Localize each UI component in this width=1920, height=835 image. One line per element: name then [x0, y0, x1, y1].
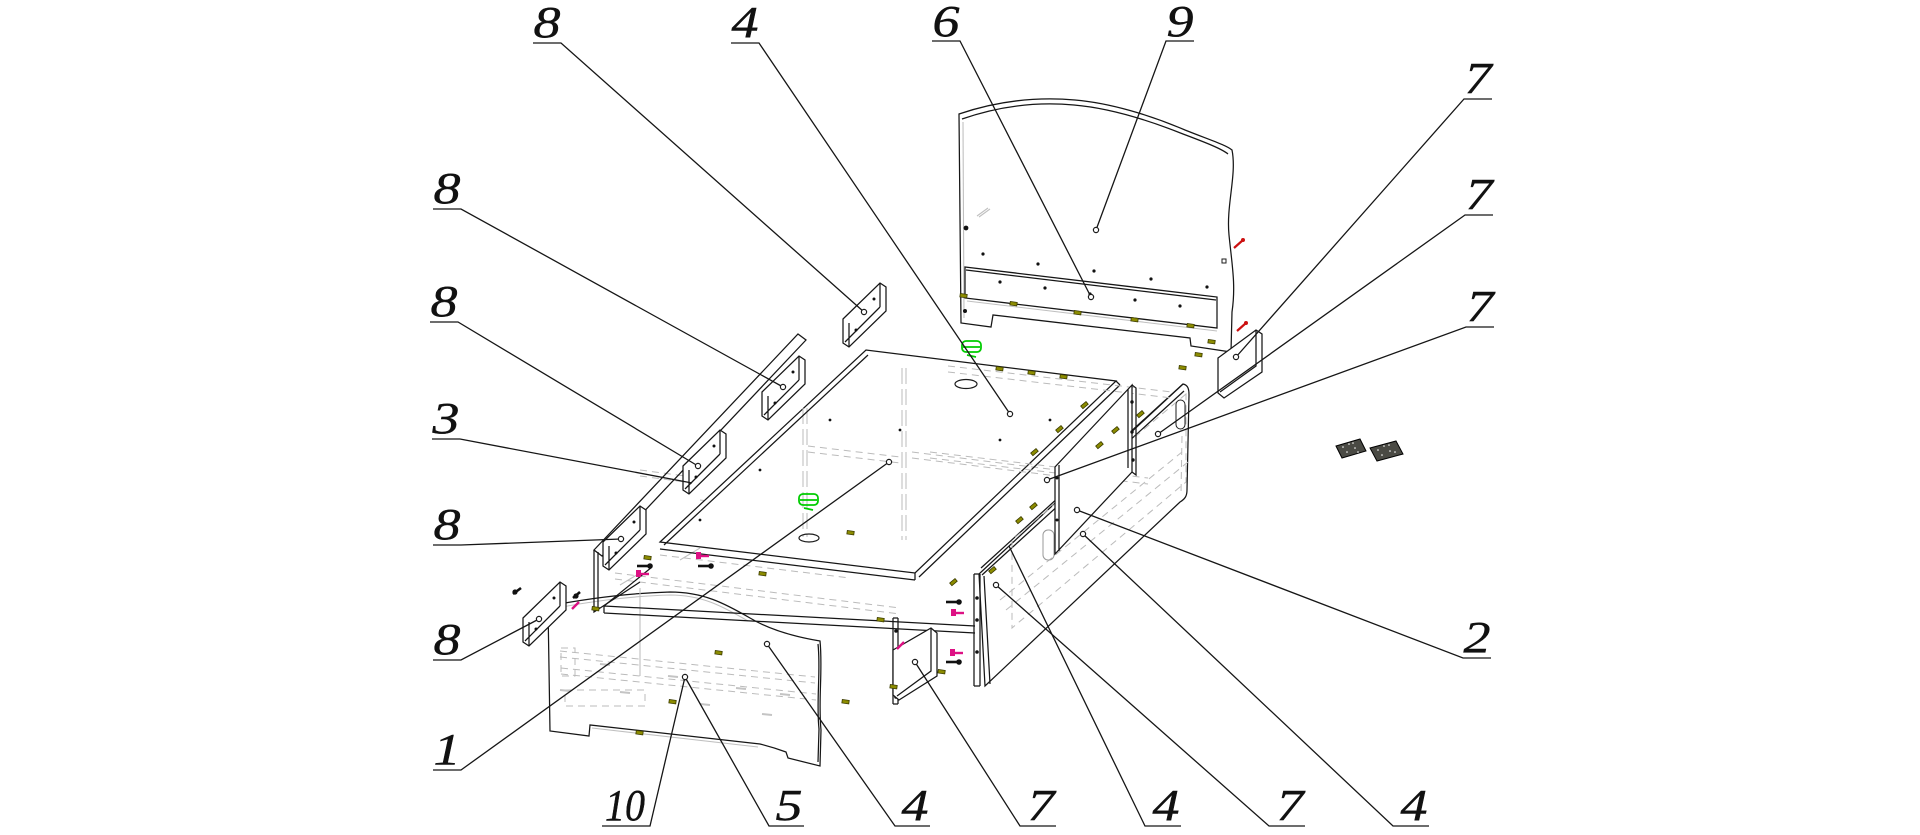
svg-text:9: 9 [1167, 0, 1194, 46]
svg-text:7: 7 [1028, 781, 1057, 830]
svg-text:4: 4 [1401, 781, 1428, 830]
svg-text:1: 1 [434, 725, 461, 774]
svg-text:7: 7 [1466, 170, 1495, 219]
svg-text:4: 4 [902, 781, 929, 830]
svg-text:2: 2 [1464, 613, 1491, 662]
svg-text:8: 8 [434, 164, 461, 213]
svg-text:8: 8 [431, 277, 458, 326]
svg-text:10: 10 [605, 781, 645, 830]
svg-text:4: 4 [1153, 781, 1180, 830]
svg-text:3: 3 [431, 394, 459, 443]
svg-text:8: 8 [434, 500, 461, 549]
svg-text:7: 7 [1467, 282, 1496, 331]
svg-text:8: 8 [534, 0, 561, 47]
svg-text:4: 4 [732, 0, 759, 47]
svg-text:8: 8 [434, 615, 461, 664]
svg-text:5: 5 [776, 781, 803, 830]
svg-text:7: 7 [1277, 781, 1306, 830]
svg-text:6: 6 [933, 0, 960, 46]
svg-text:7: 7 [1465, 54, 1494, 103]
